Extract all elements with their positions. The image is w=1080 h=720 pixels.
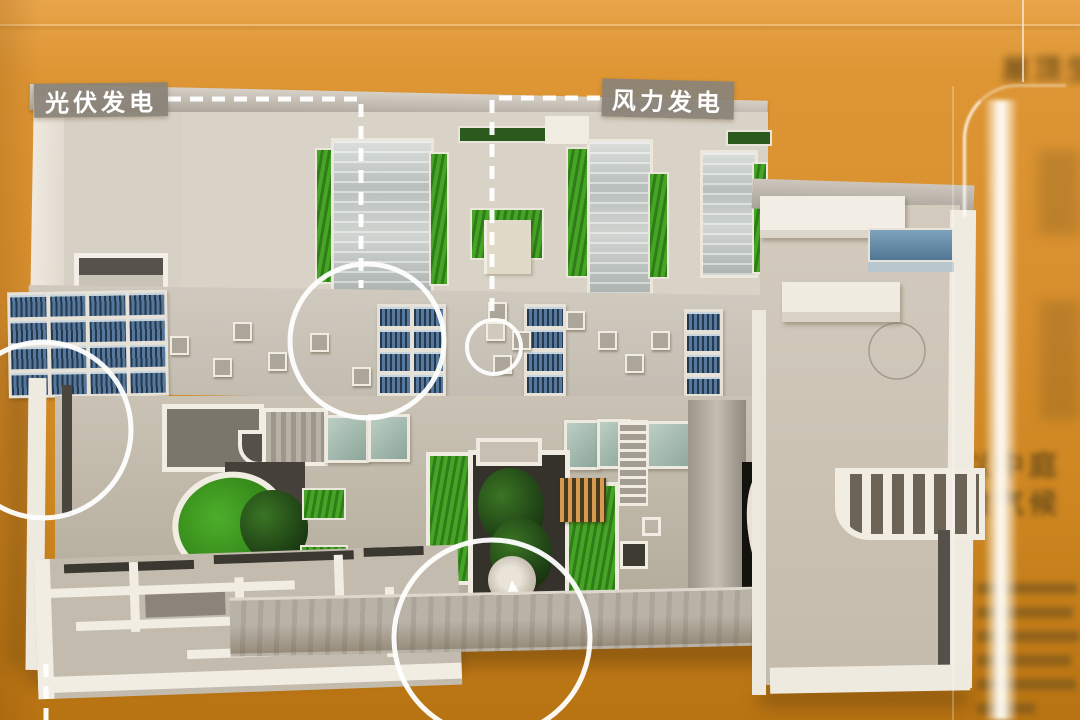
highlight-circle-wind [467, 320, 521, 374]
label-photovoltaic: 光伏发电 [34, 82, 168, 117]
pv-dashed-line [168, 99, 361, 288]
highlight-circle-courtyard [394, 540, 590, 720]
highlight-circle-pv-mid [290, 264, 444, 418]
pencil-circle [869, 323, 925, 379]
wind-dashed-line [492, 98, 600, 318]
label-photovoltaic-text: 光伏发电 [45, 82, 157, 118]
highlight-circle-pv-left [0, 342, 131, 518]
label-wind-power-text: 风力发电 [612, 80, 725, 118]
label-wind-power: 风力发电 [602, 78, 735, 119]
photo-stage: 屋顶生 以中庭 微气候 [0, 0, 1080, 720]
